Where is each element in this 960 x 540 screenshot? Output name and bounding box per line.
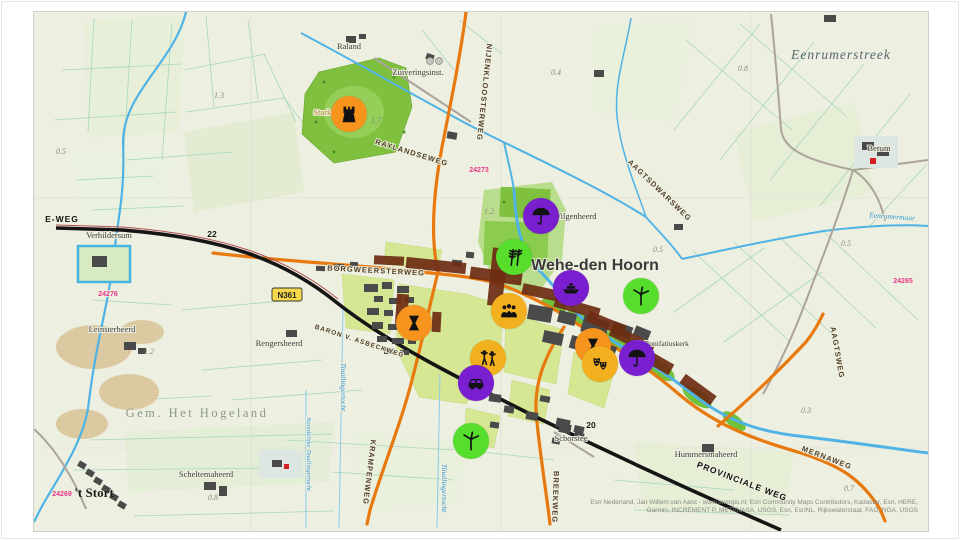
poi-marker-theater-masks[interactable]: [582, 346, 618, 382]
parcel-number: 1.2: [144, 347, 154, 356]
parcel-number: 0.5: [56, 147, 66, 156]
poi-marker-castle[interactable]: [331, 96, 367, 132]
wind-turbine-icon: [630, 285, 652, 307]
building: [674, 224, 683, 230]
building: [372, 322, 383, 329]
road-shield-n361: N361: [272, 288, 302, 301]
poi-marker-umbrella[interactable]: [523, 198, 559, 234]
building: [504, 405, 515, 413]
route-number: 24265: [893, 278, 913, 285]
route-number: 24273: [469, 167, 489, 174]
building: [384, 310, 393, 316]
place-label: Scheltemaheerd: [179, 469, 234, 479]
parcel-number: 1.7: [371, 116, 382, 125]
route-number: 24269: [52, 491, 72, 498]
km-marker: 20: [586, 420, 596, 430]
poi-marker-wind-turbine[interactable]: [453, 423, 489, 459]
km-marker: 22: [207, 229, 217, 239]
building: [286, 330, 297, 337]
building: [204, 482, 216, 490]
town-label: Wehe-den Hoorn: [531, 257, 659, 274]
wind-turbine-icon: [460, 430, 482, 452]
building: [824, 15, 836, 22]
poi-marker-umbrella[interactable]: [619, 340, 655, 376]
road-label: BREEKWEG: [550, 471, 561, 523]
castle-icon: [338, 103, 360, 125]
poi-marker-borg[interactable]: [396, 305, 432, 341]
building: [272, 460, 282, 467]
parcel-number: 0.3: [801, 406, 811, 415]
building: [466, 252, 474, 259]
poi-marker-people-group[interactable]: [491, 293, 527, 329]
parcel-number: 1.2: [484, 207, 494, 216]
building: [219, 486, 227, 496]
parcel-number: 0.5: [841, 239, 851, 248]
water-label: Tinallingertocht: [339, 363, 348, 412]
place-label: Raland: [337, 41, 362, 51]
parcel-number: 1.3: [214, 91, 224, 100]
building: [489, 393, 502, 403]
road-label: E-WEG: [45, 214, 79, 224]
building: [374, 255, 404, 266]
municipality-label: Gem. Het Hogeland: [126, 406, 269, 420]
building: [870, 158, 876, 164]
place-label: Leinsterheerd: [89, 324, 136, 334]
borg-icon: [403, 312, 425, 334]
region-label: Eenrumerstreek: [790, 47, 891, 62]
building: [392, 338, 404, 344]
building: [377, 336, 387, 342]
building: [594, 70, 604, 77]
building: [284, 464, 289, 469]
hamlet-label: 't Stort: [74, 485, 114, 500]
water-label: Noordelijke Tinallingertocht: [305, 416, 312, 491]
building: [431, 312, 441, 332]
umbrella-icon: [530, 205, 552, 227]
route-number: 24276: [98, 291, 118, 298]
building: [359, 34, 366, 39]
place-label: Berum: [867, 143, 891, 153]
place-label: Schorstee: [554, 433, 587, 443]
building: [124, 342, 136, 350]
place-label: Hummersmaheerd: [675, 449, 739, 459]
poi-marker-car[interactable]: [458, 365, 494, 401]
parcel-number: 0.5: [653, 245, 663, 254]
people-group-icon: [498, 300, 520, 322]
place-label: Verhildersum: [86, 230, 132, 240]
poi-marker-boat[interactable]: [553, 270, 589, 306]
building: [490, 421, 500, 428]
building: [397, 286, 409, 293]
car-icon: [465, 372, 487, 394]
boat-icon: [560, 277, 582, 299]
parcel-number: 0.7: [844, 484, 855, 493]
theater-masks-icon: [589, 353, 611, 375]
attribution-line: Garmin, INCREMENT P, METI/NASA, USGS, Es…: [647, 507, 919, 514]
building: [316, 266, 325, 271]
place-label: Rengersheerd: [256, 338, 303, 348]
parcel-number: 0.4: [551, 68, 561, 77]
building: [367, 308, 379, 315]
attribution-line: Esri Nederland, Jan Willem van Aalst - w…: [590, 499, 918, 506]
shield-label: N361: [277, 291, 297, 300]
building: [364, 284, 378, 292]
water-label: Tinallingertocht: [440, 464, 449, 513]
building: [374, 296, 383, 302]
parcel-number: 0.8: [738, 64, 748, 73]
umbrella-icon: [626, 347, 648, 369]
place-label: Wilgenheerd: [553, 211, 597, 221]
place-label: Zuiveringsinst.: [392, 67, 443, 77]
poi-marker-wind-turbine[interactable]: [623, 278, 659, 314]
map-frame: N361 Wehe-den Hoorn Eenrumerstreek Gem. …: [33, 11, 929, 532]
poi-marker-wheat[interactable]: [496, 239, 532, 275]
wheat-icon: [503, 246, 525, 268]
parcel-number: 0.8: [208, 493, 218, 502]
building: [92, 256, 107, 267]
building: [382, 282, 392, 289]
